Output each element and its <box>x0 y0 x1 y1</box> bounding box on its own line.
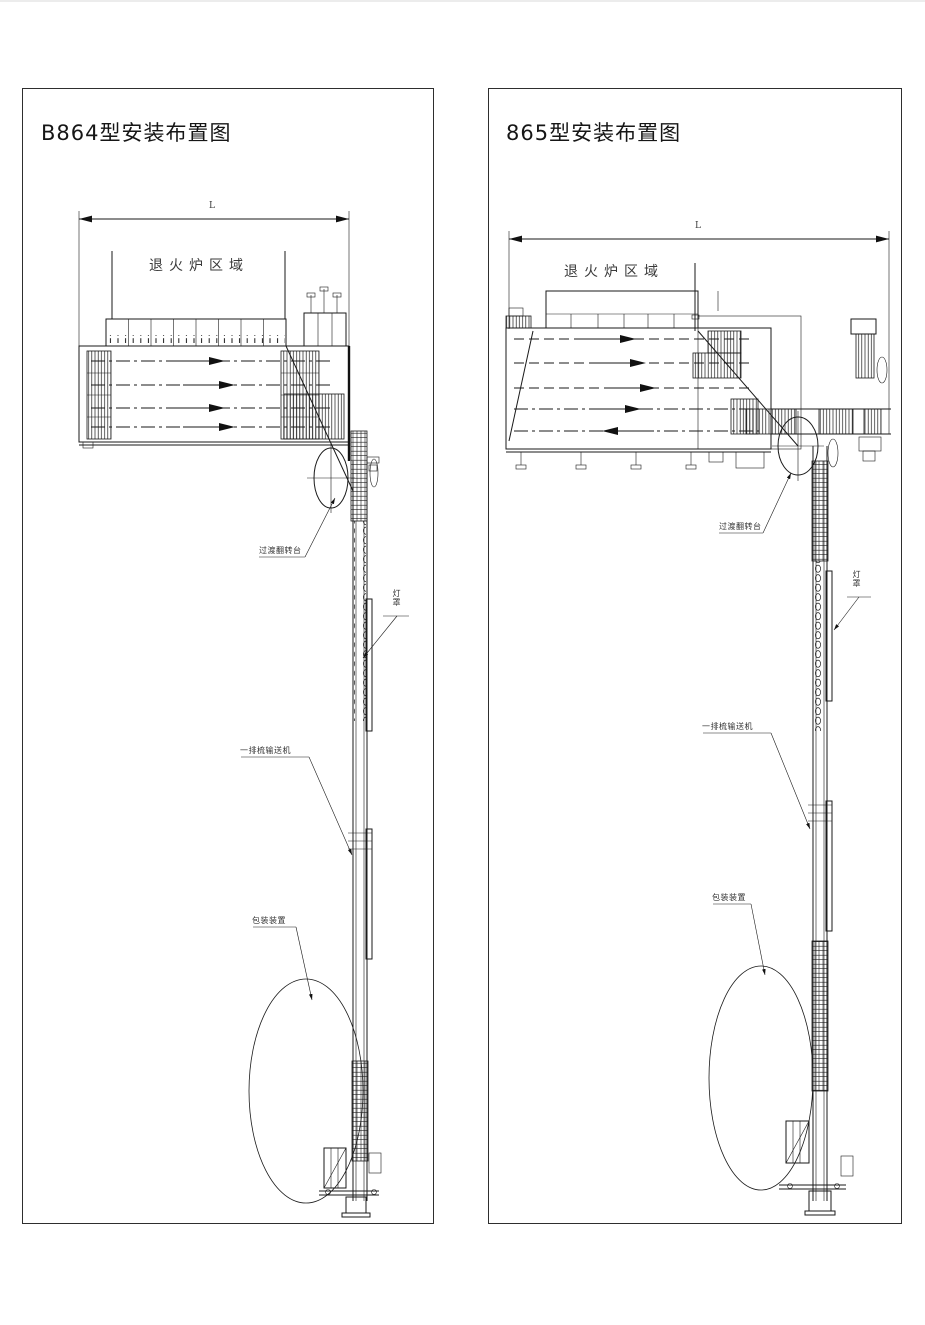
b864-conveyor-head <box>351 431 379 521</box>
b864-furnace-zone-label: 退火炉区域 <box>149 255 249 275</box>
865-packing-zone-ellipse <box>709 966 813 1190</box>
865-elevator-conveyor <box>808 446 832 1201</box>
b864-callout-transfer-table: 过渡翻转台 <box>259 545 302 556</box>
b864-flow-arrows <box>173 357 235 431</box>
b864-dimension-label: L <box>209 201 215 211</box>
865-callout-packing-device: 包装装置 <box>712 892 746 903</box>
panel-title-b864: B864型安装布置图 <box>41 117 232 147</box>
865-callout-comb-conveyor: 一排梳输送机 <box>702 721 753 732</box>
panel-b864: B864型安装布置图 L 退火炉区域 过渡翻转台 灯罩 一排梳输送机 包装装置 <box>22 88 434 1224</box>
b864-elevator-conveyor <box>348 461 372 1201</box>
panel-title-865: 865型安装布置图 <box>506 117 681 147</box>
b864-callout-lamp-cover: 灯罩 <box>391 589 402 607</box>
865-callout-transfer-table: 过渡翻转台 <box>719 521 762 532</box>
865-dimension-label: L <box>695 221 701 231</box>
b864-callout-packing-device: 包装装置 <box>252 915 286 926</box>
b864-packing-machine <box>319 1148 381 1217</box>
865-furnace-top-band <box>506 291 698 328</box>
865-drawing <box>489 89 901 1223</box>
865-takeoff-section <box>746 319 891 461</box>
panel-865: 865型安装布置图 L 退火炉区域 过渡翻转台 灯罩 一排梳输送机 包装装置 <box>488 88 902 1224</box>
865-callout-lamp-cover: 灯罩 <box>851 570 862 588</box>
b864-drive-equipment <box>304 287 346 346</box>
b864-furnace-top-band <box>106 319 286 346</box>
865-flow-arrows <box>584 335 656 435</box>
page-top-edge <box>0 0 925 2</box>
865-furnace-feet <box>516 452 764 469</box>
b864-furnace-body <box>79 346 349 448</box>
b864-callout-comb-conveyor: 一排梳输送机 <box>240 745 291 756</box>
865-furnace-zone-label: 退火炉区域 <box>564 261 664 281</box>
